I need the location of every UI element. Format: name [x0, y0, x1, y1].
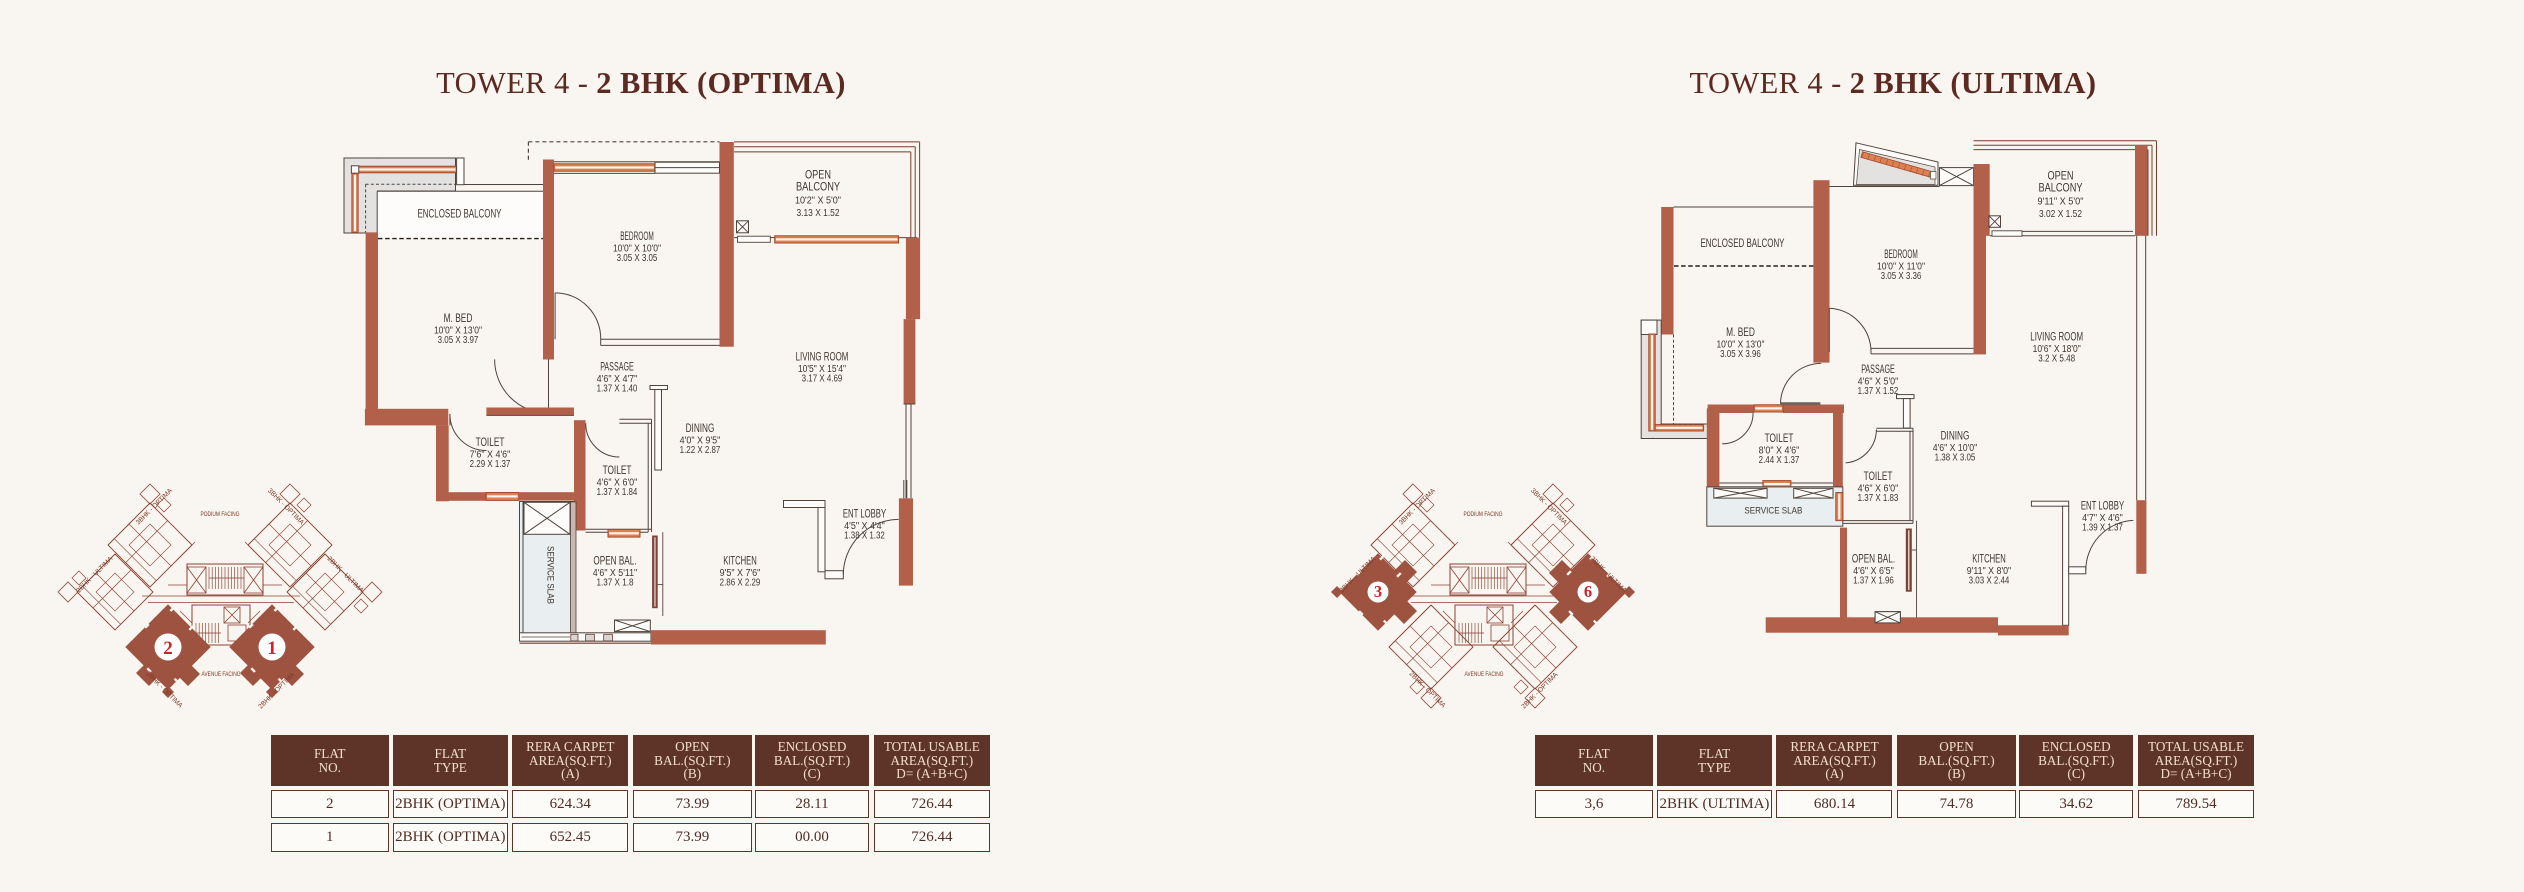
svg-text:AVENUE FACING: AVENUE FACING	[1465, 671, 1504, 678]
svg-text:BALCONY: BALCONY	[2039, 183, 2083, 195]
svg-text:1.37 X 1.84: 1.37 X 1.84	[597, 487, 638, 498]
svg-text:DINING: DINING	[686, 423, 715, 435]
svg-text:1.22 X 2.87: 1.22 X 2.87	[680, 445, 721, 456]
svg-text:M. BED: M. BED	[444, 313, 473, 325]
svg-text:ENT LOBBY: ENT LOBBY	[843, 509, 886, 521]
svg-text:ENCLOSED BALCONY: ENCLOSED BALCONY	[1701, 238, 1785, 250]
svg-text:OPEN BAL.: OPEN BAL.	[1852, 554, 1895, 566]
svg-text:AVENUE FACING: AVENUE FACING	[202, 671, 241, 678]
svg-text:3.03 X 2.44: 3.03 X 2.44	[1969, 576, 2010, 587]
svg-text:OPEN BAL.: OPEN BAL.	[593, 556, 636, 568]
svg-text:TOILET: TOILET	[603, 465, 632, 477]
svg-text:1.37 X 1.8: 1.37 X 1.8	[597, 578, 634, 589]
svg-text:PODIUM FACING: PODIUM FACING	[201, 511, 240, 518]
svg-text:3.05 X 3.36: 3.05 X 3.36	[1881, 271, 1922, 282]
svg-text:PASSAGE: PASSAGE	[600, 362, 634, 374]
svg-text:BALCONY: BALCONY	[796, 182, 840, 194]
svg-text:1: 1	[267, 638, 277, 659]
svg-text:1.38 X 3.05: 1.38 X 3.05	[1935, 453, 1976, 464]
svg-text:1.37 X 1.52: 1.37 X 1.52	[1858, 386, 1899, 397]
svg-text:1.37 X 1.40: 1.37 X 1.40	[597, 384, 638, 395]
svg-text:KITCHEN: KITCHEN	[1972, 554, 2006, 566]
svg-text:3: 3	[1374, 582, 1382, 601]
svg-text:3.05 X 3.96: 3.05 X 3.96	[1720, 349, 1761, 360]
svg-text:ENCLOSED BALCONY: ENCLOSED BALCONY	[418, 209, 502, 221]
svg-text:LIVING ROOM: LIVING ROOM	[2030, 332, 2083, 344]
svg-text:TOILET: TOILET	[1864, 471, 1893, 483]
svg-text:2.86 X 2.29: 2.86 X 2.29	[720, 578, 761, 589]
svg-text:9'11" X 5'0": 9'11" X 5'0"	[2038, 197, 2084, 208]
svg-text:1.37 X 1.83: 1.37 X 1.83	[1858, 493, 1899, 504]
svg-text:3.02 X 1.52: 3.02 X 1.52	[2039, 209, 2082, 220]
svg-text:TOILET: TOILET	[1765, 433, 1794, 445]
svg-text:DINING: DINING	[1941, 431, 1970, 443]
svg-text:3.17 X 4.69: 3.17 X 4.69	[802, 374, 843, 385]
svg-text:2.29 X 1.37: 2.29 X 1.37	[470, 459, 511, 470]
svg-text:TOILET: TOILET	[476, 437, 505, 449]
svg-text:PODIUM FACING: PODIUM FACING	[1464, 511, 1503, 518]
svg-text:3.05 X 3.05: 3.05 X 3.05	[617, 253, 658, 264]
svg-text:2BHK - ULTIMA: 2BHK - ULTIMA	[326, 555, 365, 594]
svg-text:SERVICE SLAB: SERVICE SLAB	[545, 546, 556, 604]
svg-text:3.13 X 1.52: 3.13 X 1.52	[797, 208, 840, 219]
svg-text:3.05 X 3.97: 3.05 X 3.97	[438, 335, 479, 346]
svg-text:2BHK - ULTIMA: 2BHK - ULTIMA	[75, 555, 114, 594]
svg-text:10'2" X 5'0": 10'2" X 5'0"	[795, 196, 841, 207]
svg-text:3.2 X 5.48: 3.2 X 5.48	[2038, 354, 2075, 365]
svg-text:2: 2	[163, 638, 173, 659]
svg-text:2.44 X 1.37: 2.44 X 1.37	[1759, 455, 1800, 466]
svg-text:OPEN: OPEN	[2048, 171, 2074, 183]
svg-text:ENT LOBBY: ENT LOBBY	[2081, 501, 2124, 513]
svg-text:1.37 X 1.96: 1.37 X 1.96	[1853, 576, 1894, 587]
svg-text:PASSAGE: PASSAGE	[1861, 364, 1895, 376]
svg-text:1.39 X 1.37: 1.39 X 1.37	[2082, 523, 2123, 534]
svg-text:SERVICE SLAB: SERVICE SLAB	[1744, 506, 1802, 517]
svg-text:LIVING ROOM: LIVING ROOM	[796, 352, 849, 364]
svg-text:BEDROOM: BEDROOM	[620, 231, 654, 243]
svg-text:1.38 X 1.32: 1.38 X 1.32	[844, 531, 885, 542]
svg-text:OPEN: OPEN	[805, 170, 831, 182]
svg-text:2BHK - OPTIMA: 2BHK - OPTIMA	[1520, 671, 1559, 710]
svg-text:6: 6	[1584, 582, 1592, 601]
svg-text:BEDROOM: BEDROOM	[1884, 249, 1918, 261]
svg-text:M. BED: M. BED	[1726, 327, 1755, 339]
svg-text:KITCHEN: KITCHEN	[723, 556, 757, 568]
